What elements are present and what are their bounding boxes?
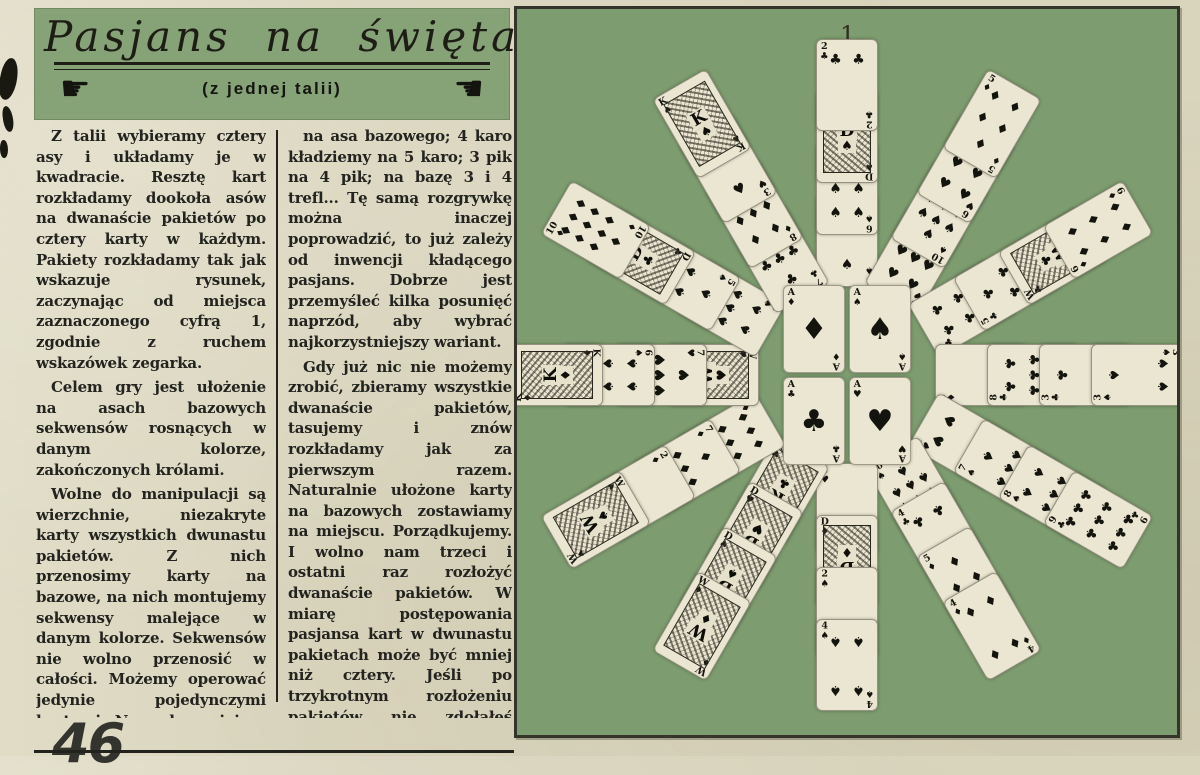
subtitle-row: ☛ (z jednej talii) ☚ — [34, 70, 510, 104]
ink-smudge — [0, 57, 21, 102]
face-card-portrait: K♦ — [521, 351, 593, 399]
card-pips: ♣♣ — [824, 53, 870, 117]
article-column-2: na asa bazowego; 4 karo kładziemy na 5 k… — [288, 126, 512, 718]
ace-pip: ♦ — [784, 286, 844, 372]
ace-pip: ♥ — [850, 378, 910, 464]
article-column-1: Z talii wybieramy cztery asy i układamy … — [36, 126, 266, 718]
page-title: Pasjans na święta — [44, 12, 500, 61]
playing-card: K ♦K ♦K♦ — [514, 344, 603, 406]
page-number: 46 — [52, 712, 123, 775]
article-paragraph: Wolne do manipulacji są wierzchnie, niez… — [36, 484, 266, 718]
face-card-portrait: W♦ — [663, 583, 741, 669]
article-paragraph: Celem gry jest ułożenie na asach bazowyc… — [36, 377, 266, 480]
manicule-right-icon: ☛ — [60, 74, 90, 104]
page-subtitle: (z jednej talii) — [202, 79, 342, 99]
card-packet-10: W ♥W ♥W♥7 ♥7 ♥♥♥♥♥♥♥♥6 ♠6 ♠♠♠♠♠♠♠K ♦K ♦K… — [514, 343, 759, 407]
base-ace-card: A ♠A ♠♠ — [849, 285, 911, 373]
card-pips: ♣♣♣♣♣♣♣♣♣ — [1059, 484, 1137, 556]
card-packet-7: 2 ♥2 ♥♥♥D ♦D ♦D♦2 ♠2 ♠♠♠4 ♠4 ♠♠♠♠♠ — [815, 463, 879, 711]
card-pips: ♦♦♦♦♦♦♦♦♦♦ — [557, 194, 635, 266]
base-ace-card: A ♣A ♣♣ — [783, 377, 845, 465]
base-ace-card: A ♥A ♥♥ — [849, 377, 911, 465]
ink-smudge — [1, 105, 15, 132]
article-paragraph: na asa bazowego; 4 karo kładziemy na 5 k… — [288, 126, 512, 353]
ink-smudge — [0, 140, 8, 158]
card-diagram: 1 3 ♠3 ♠♠♠♠6 ♠6 ♠♠♠♠♠♠♠D ♠D ♠D♠2 ♣2 ♣♣♣8… — [514, 6, 1180, 738]
article-paragraph: Z talii wybieramy cztery asy i układamy … — [36, 126, 266, 373]
card-pips: ♦♦♦♦ — [956, 587, 1028, 665]
title-band: Pasjans na święta ☛ (z jednej talii) ☚ — [34, 8, 510, 120]
manicule-left-icon: ☚ — [454, 74, 484, 104]
playing-card: 3 ♠3 ♠♠♠♠ — [1091, 344, 1180, 406]
article-paragraph: Gdy już nic nie możemy zrobić, zbieramy … — [288, 357, 512, 718]
playing-card: 4 ♠4 ♠♠♠♠♠ — [816, 619, 878, 711]
card-pips: ♦♦♦♦♦ — [956, 85, 1028, 163]
base-ace-card: A ♦A ♦♦ — [783, 285, 845, 373]
card-packet-4: 2 ♦2 ♦♦♦8 ♣8 ♣♣♣♣♣♣♣♣♣3 ♣3 ♣♣♣♣3 ♠3 ♠♠♠♠ — [935, 343, 1180, 407]
title-double-rule — [54, 62, 490, 70]
column-divider — [276, 130, 278, 702]
card-pips: ♠♠♠ — [1105, 352, 1169, 398]
card-pips: ♦♦♦♦♦♦ — [1059, 194, 1137, 266]
face-card-portrait: W♠ — [553, 481, 639, 559]
bottom-rule — [34, 750, 514, 753]
ace-pip: ♣ — [784, 378, 844, 464]
face-card-portrait: K♠ — [663, 81, 741, 167]
card-packet-1: 3 ♠3 ♠♠♠♠6 ♠6 ♠♠♠♠♠♠♠D ♠D ♠D♠2 ♣2 ♣♣♣ — [815, 39, 879, 287]
ace-pip: ♠ — [850, 286, 910, 372]
card-pips: ♠♠♠♠ — [824, 633, 870, 697]
playing-card: 2 ♣2 ♣♣♣ — [816, 39, 878, 131]
